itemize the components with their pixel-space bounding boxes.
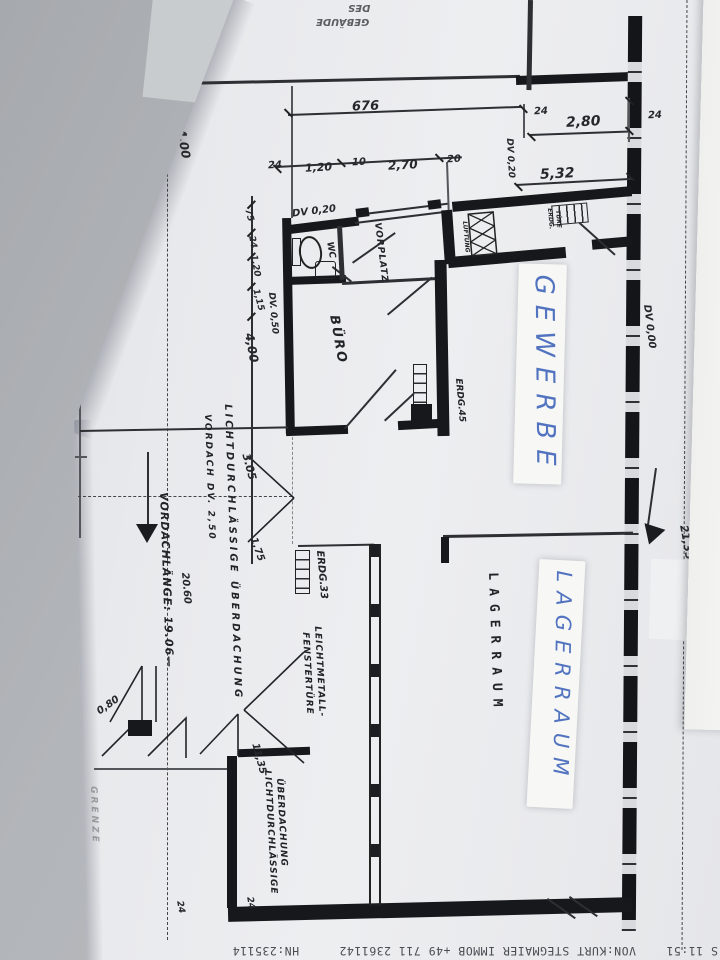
dim-24: 24 (534, 106, 548, 117)
top-wall-thick (516, 72, 632, 85)
boundary-cross-tick (72, 456, 87, 458)
plan-paper: 676 24 2,80 24 24 1,20 10 2,70 20 5,32 D… (0, 0, 720, 960)
dim-chain-line (251, 196, 253, 564)
note-grenze: GRENZE (88, 786, 100, 845)
dim-dv020-wc: DV 0,20 (291, 203, 336, 219)
extension-line (446, 162, 449, 210)
room-label-vorplatz: VORPLATZ (372, 222, 389, 283)
note-tuere-small: TÜRE (554, 210, 563, 228)
dim-10: 10 (352, 157, 366, 169)
fax-sender: VON:KURT STEGMAIER IMMOB +49 711 2361142 (339, 944, 636, 958)
bottom-outer-wall (228, 897, 632, 922)
buero-door-block (411, 404, 432, 424)
dim-24: 24 (268, 160, 282, 172)
dim-280: 2,80 (566, 113, 601, 131)
north-arrow-line (646, 468, 656, 530)
dim-400: 4,00 (242, 332, 261, 364)
north-arrow (639, 523, 666, 548)
dim-line (530, 131, 630, 136)
office-bottom-wall (286, 425, 348, 436)
dim-line (288, 106, 522, 116)
sink-icon (315, 261, 336, 279)
note-des: DES (348, 2, 370, 13)
fax-id: HN:235114 (232, 944, 299, 958)
dim-20: 20 (447, 154, 461, 166)
tape-gewerbe-text: GEWERBE (529, 274, 561, 475)
hall-divider-stub (441, 537, 449, 563)
tape-lagerraum-text: LAGERRAUM (548, 570, 576, 784)
dim-24: 24 (174, 900, 186, 914)
right-outer-wall-windows (622, 16, 642, 931)
dim-2060: 20.60 (179, 572, 193, 604)
dim-676: 676 (352, 99, 380, 115)
note-vordach-dv: VORDACH DV. 2,50 (202, 414, 216, 541)
hall-divider-line (443, 532, 633, 538)
dim-120: 1,20 (305, 160, 333, 174)
extension-line (291, 86, 293, 218)
room-label-buero: BÜRO (326, 314, 349, 365)
dim-24: 24 (244, 896, 256, 910)
room-label-wc: WC (324, 241, 337, 259)
door-swing (384, 393, 414, 422)
dim-dv020: DV 0,20 (504, 138, 516, 178)
glass-front-wall (369, 544, 381, 906)
door-swing (344, 369, 397, 429)
room-label-lagerraum: LAGERRAUM (485, 572, 505, 715)
door-swing (387, 277, 433, 316)
tape-lagerraum: LAGERRAUM (527, 559, 586, 809)
dim-75: 75 (242, 208, 255, 223)
boundary-line (79, 76, 81, 538)
tape-gewerbe: GEWERBE (513, 263, 567, 484)
note-gebaeude: GEBÄUDE (316, 16, 369, 27)
entry-door-post (428, 199, 442, 210)
canopy-post (128, 720, 152, 736)
note-erdg45: ERDG.45 (453, 378, 467, 423)
front-connect-line (298, 544, 374, 547)
fax-header-line: S 11:51 VON:KURT STEGMAIER IMMOB +49 711… (0, 939, 720, 960)
dim-24: 24 (648, 110, 662, 121)
note-leichtmetall: LEICHTMETALL- (312, 626, 327, 718)
dim-270: 2,70 (388, 157, 418, 173)
scanned-floorplan-photo: 676 24 2,80 24 24 1,20 10 2,70 20 5,32 D… (0, 0, 720, 960)
fax-time: S 11:51 (666, 944, 718, 958)
dim-line (80, 426, 288, 431)
office-right-wall (434, 260, 449, 436)
dim-24: 24 (246, 235, 258, 249)
entry-door-post (356, 207, 370, 218)
shaft-crosshatch (467, 211, 498, 257)
dim-dv000: DV 0,00 (641, 304, 657, 349)
extension-line (628, 98, 630, 142)
dim-532: 5,32 (540, 165, 575, 183)
north-arrow-line (147, 452, 149, 528)
property-dashdot-line (682, 0, 688, 950)
corridor-top-wall (452, 186, 632, 212)
note-erdg33: ERDG.33 (314, 550, 329, 600)
dim-dv050: DV. 0,50 (266, 292, 280, 335)
north-arrow (136, 524, 158, 543)
buero-door-element (413, 364, 427, 408)
boundary-cross-tick (72, 296, 87, 298)
